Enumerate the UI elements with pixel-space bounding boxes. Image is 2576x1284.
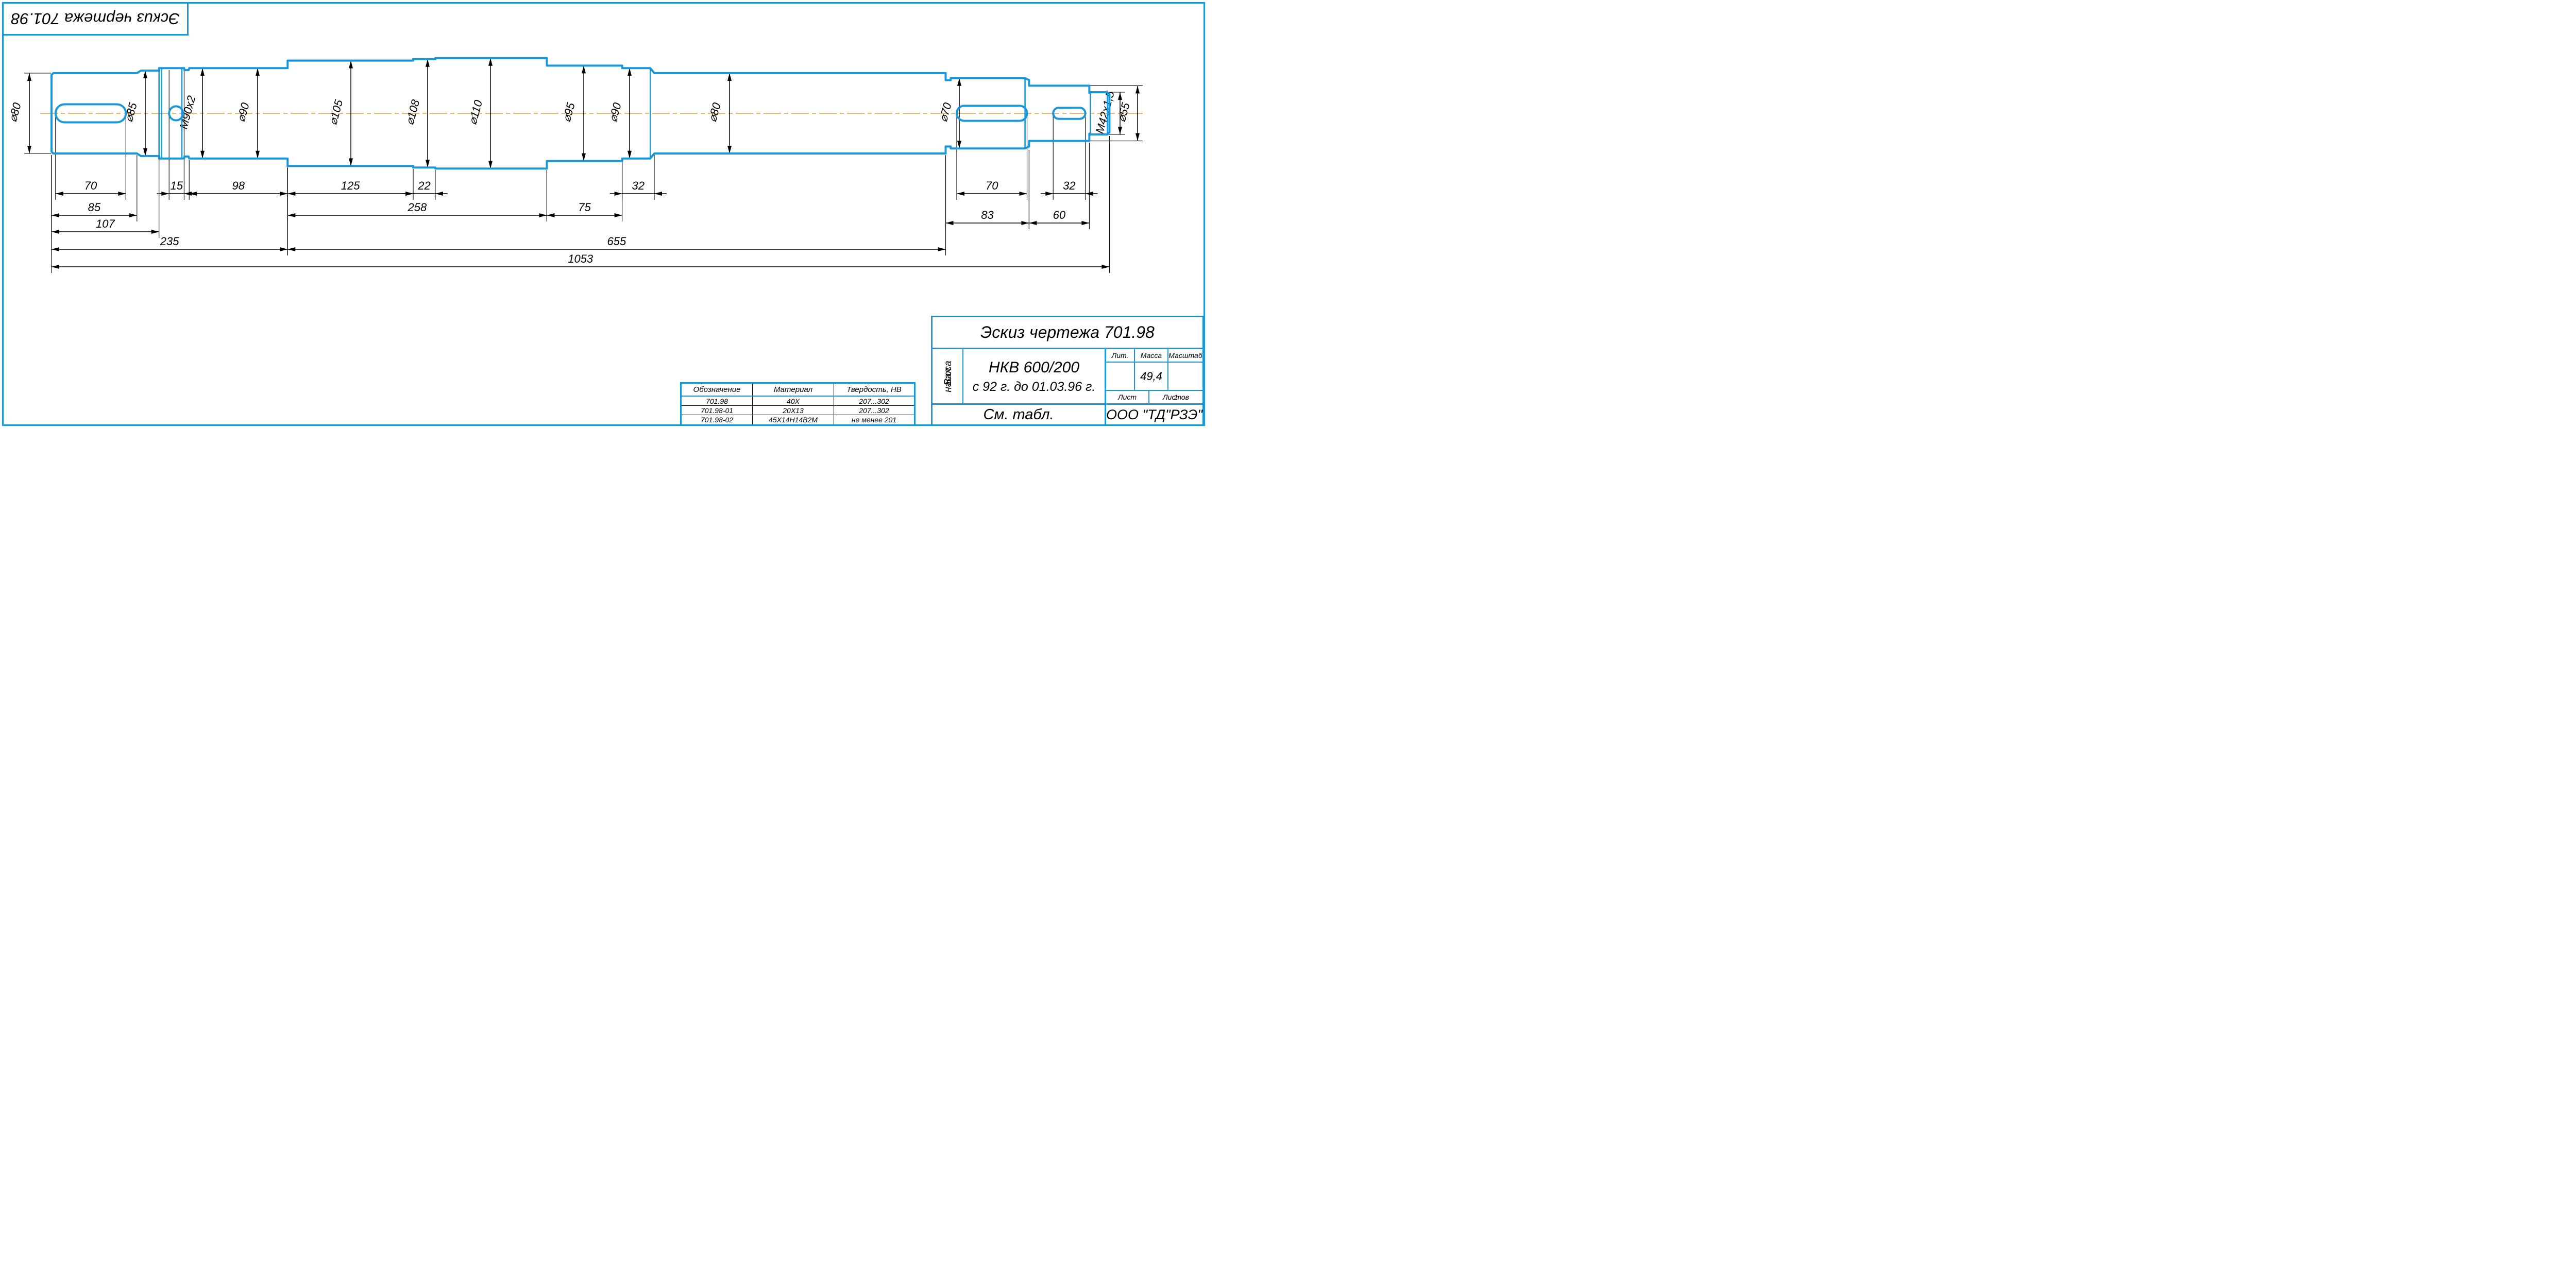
dim-arrowhead xyxy=(129,213,137,217)
dim-label: 85 xyxy=(88,201,101,214)
dim-arrowhead xyxy=(349,158,353,166)
dim-arrowhead xyxy=(27,146,31,153)
product-name-cell: НКВ 600/200 с 92 г. до 01.03.96 г. xyxy=(963,349,1106,403)
dim-arrowhead xyxy=(280,192,287,196)
dim-arrowhead xyxy=(1101,265,1109,269)
dim-arrowhead xyxy=(957,141,961,148)
scale-value xyxy=(1168,363,1202,390)
dim-arrowhead xyxy=(1118,92,1122,100)
mass-value: 49,4 xyxy=(1135,363,1168,390)
dim-arrowhead xyxy=(1136,85,1140,93)
material-table-row: 701.98-0120Х13207...302 xyxy=(682,406,914,415)
see-table-cell: См. табл. xyxy=(933,405,1106,424)
dim-arrowhead xyxy=(628,68,632,76)
material-cell: 701.98 xyxy=(682,397,753,405)
sheets-value: 1 xyxy=(1174,393,1178,401)
dimension-layer: 7015981252232703285258758360107235655105… xyxy=(6,58,1143,273)
dim-label: ⌀90 xyxy=(234,101,252,124)
mass-label: Масса xyxy=(1135,349,1168,363)
dim-arrowhead xyxy=(1118,127,1122,134)
dim-label: ⌀95 xyxy=(560,101,578,124)
lit-label: Лит. xyxy=(1106,349,1135,363)
dim-arrowhead xyxy=(615,213,622,217)
dim-arrowhead xyxy=(280,247,287,251)
dim-arrowhead xyxy=(256,68,260,76)
dim-label: ⌀90 xyxy=(606,101,624,124)
dim-arrowhead xyxy=(52,213,59,217)
dim-label: 32 xyxy=(1063,179,1075,192)
dim-label: 83 xyxy=(981,209,994,221)
dim-label: M90x2 xyxy=(177,94,198,130)
dim-label: 1053 xyxy=(568,252,594,265)
dim-arrowhead xyxy=(256,151,260,159)
title-block-title: Эскиз чертежа 701.98 xyxy=(933,317,1202,349)
dim-arrowhead xyxy=(151,230,159,234)
dim-arrowhead xyxy=(1029,221,1037,225)
dim-arrowhead xyxy=(52,265,59,269)
dim-arrowhead xyxy=(488,161,493,168)
dim-arrowhead xyxy=(426,160,430,167)
dim-arrowhead xyxy=(349,61,353,69)
dim-label: 22 xyxy=(417,179,430,192)
dim-label: ⌀85 xyxy=(122,101,140,124)
material-cell: 45Х14Н14В2М xyxy=(753,415,834,424)
dim-arrowhead xyxy=(118,192,126,196)
dim-arrowhead xyxy=(1021,221,1029,225)
dim-label: 258 xyxy=(407,201,427,214)
dim-arrowhead xyxy=(52,247,59,251)
dim-arrowhead xyxy=(200,151,205,159)
dim-arrowhead xyxy=(426,59,430,67)
dim-arrowhead xyxy=(628,151,632,159)
dim-label: ⌀55 xyxy=(1115,101,1132,124)
sheet-label: Лист xyxy=(1106,391,1149,403)
dim-arrowhead xyxy=(143,148,147,156)
dim-arrowhead xyxy=(539,213,547,217)
product-name-line2: с 92 г. до 01.03.96 г. xyxy=(973,378,1096,396)
dim-label: 60 xyxy=(1053,209,1066,221)
material-table-body: 701.9840Х207...302701.98-0120Х13207...30… xyxy=(682,397,914,424)
dim-arrowhead xyxy=(1020,192,1027,196)
dim-arrowhead xyxy=(727,146,732,153)
dim-label: 70 xyxy=(986,179,998,192)
material-header-designation: Обозначение xyxy=(682,384,753,396)
object-name-line2: насоса xyxy=(943,361,954,392)
dim-arrowhead xyxy=(957,78,961,86)
dim-label: 98 xyxy=(232,179,245,192)
material-table-row: 701.98-0245Х14Н14В2Мне менее 201 xyxy=(682,415,914,424)
dim-arrowhead xyxy=(143,71,147,78)
sheets-cell: Листов 1 xyxy=(1149,391,1202,403)
dim-arrowhead xyxy=(582,153,586,161)
material-cell: 701.98-02 xyxy=(682,415,753,424)
material-header-hardness: Твердость, НВ xyxy=(834,384,914,396)
dim-arrowhead xyxy=(727,73,732,81)
dim-arrowhead xyxy=(615,192,622,196)
dim-arrowhead xyxy=(435,192,443,196)
dim-arrowhead xyxy=(287,213,295,217)
title-block: Эскиз чертежа 701.98 Вал насоса НКВ 600/… xyxy=(931,316,1204,426)
dim-arrowhead xyxy=(946,221,954,225)
material-cell: 701.98-01 xyxy=(682,406,753,415)
material-cell: 207...302 xyxy=(834,406,914,415)
dim-label: ⌀108 xyxy=(403,98,422,126)
dim-arrowhead xyxy=(52,230,59,234)
object-name-rotated: Вал насоса xyxy=(933,349,963,404)
material-table-header: Обозначение Материал Твердость, НВ xyxy=(682,384,914,397)
material-header-material: Материал xyxy=(753,384,834,396)
dim-label: 655 xyxy=(607,235,626,248)
material-cell: 207...302 xyxy=(834,397,914,405)
dim-label: ⌀70 xyxy=(937,101,954,124)
material-cell: 40Х xyxy=(753,397,834,405)
dim-arrowhead xyxy=(547,213,554,217)
dim-label: 235 xyxy=(160,235,179,248)
dim-arrowhead xyxy=(161,192,169,196)
dim-label: 32 xyxy=(632,179,645,192)
dim-arrowhead xyxy=(56,192,63,196)
dim-arrowhead xyxy=(1081,221,1089,225)
title-block-bottom: См. табл. ООО "ТД"РЗЭ" xyxy=(933,403,1202,424)
dim-arrowhead xyxy=(405,192,413,196)
material-cell: не менее 201 xyxy=(834,415,914,424)
dim-label: 15 xyxy=(171,179,183,192)
dim-arrowhead xyxy=(582,65,586,73)
dim-label: ⌀80 xyxy=(706,101,723,124)
material-table: Обозначение Материал Твердость, НВ 701.9… xyxy=(680,382,916,426)
dim-label: ⌀110 xyxy=(466,98,485,126)
company-cell: ООО "ТД"РЗЭ" xyxy=(1106,405,1202,424)
object-name-cell: Вал насоса xyxy=(933,349,963,403)
dim-arrowhead xyxy=(1136,133,1140,141)
material-cell: 20Х13 xyxy=(753,406,834,415)
dim-label: 70 xyxy=(84,179,97,192)
dim-arrowhead xyxy=(287,247,295,251)
dim-arrowhead xyxy=(488,58,493,66)
dim-arrowhead xyxy=(1045,192,1053,196)
dim-label: ⌀105 xyxy=(326,98,345,126)
dim-arrowhead xyxy=(957,192,964,196)
dim-label: 75 xyxy=(578,201,591,214)
scale-label: Масштаб xyxy=(1168,349,1202,363)
dim-label: 107 xyxy=(96,217,115,230)
title-block-right-grid: Лит. Масса Масштаб 49,4 Лист Листов 1 xyxy=(1106,349,1202,403)
dim-label: M42x1,5 xyxy=(1093,89,1117,135)
dim-arrowhead xyxy=(938,247,946,251)
dim-arrowhead xyxy=(200,68,205,76)
product-name-line1: НКВ 600/200 xyxy=(989,357,1079,378)
sheet-row: Лист Листов 1 xyxy=(1106,390,1202,403)
dim-arrowhead xyxy=(287,192,295,196)
dim-arrowhead xyxy=(27,73,31,81)
dim-arrowhead xyxy=(654,192,662,196)
lit-value xyxy=(1106,363,1135,390)
dim-label: ⌀80 xyxy=(6,101,24,124)
dim-label: 125 xyxy=(341,179,360,192)
material-table-row: 701.9840Х207...302 xyxy=(682,397,914,406)
